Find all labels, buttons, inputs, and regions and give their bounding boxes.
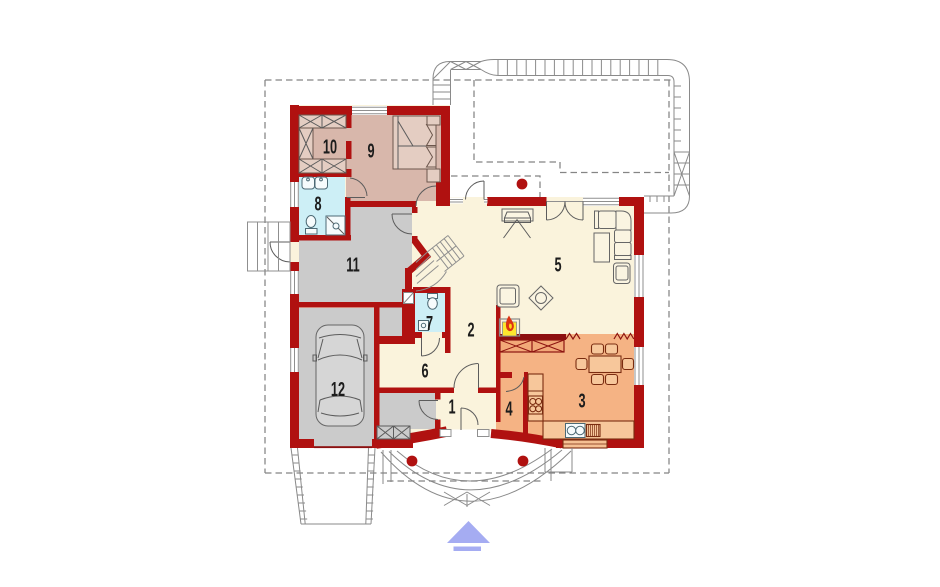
svg-text:9: 9 [367, 139, 374, 162]
svg-text:10: 10 [323, 135, 337, 158]
svg-text:5: 5 [554, 253, 561, 276]
svg-text:11: 11 [346, 253, 359, 276]
svg-text:1: 1 [448, 395, 455, 418]
svg-text:2: 2 [467, 318, 474, 341]
svg-text:8: 8 [314, 192, 321, 215]
svg-text:3: 3 [578, 389, 585, 412]
svg-text:4: 4 [505, 397, 512, 420]
svg-text:6: 6 [421, 359, 428, 382]
svg-text:7: 7 [426, 312, 433, 335]
svg-text:12: 12 [331, 378, 345, 401]
